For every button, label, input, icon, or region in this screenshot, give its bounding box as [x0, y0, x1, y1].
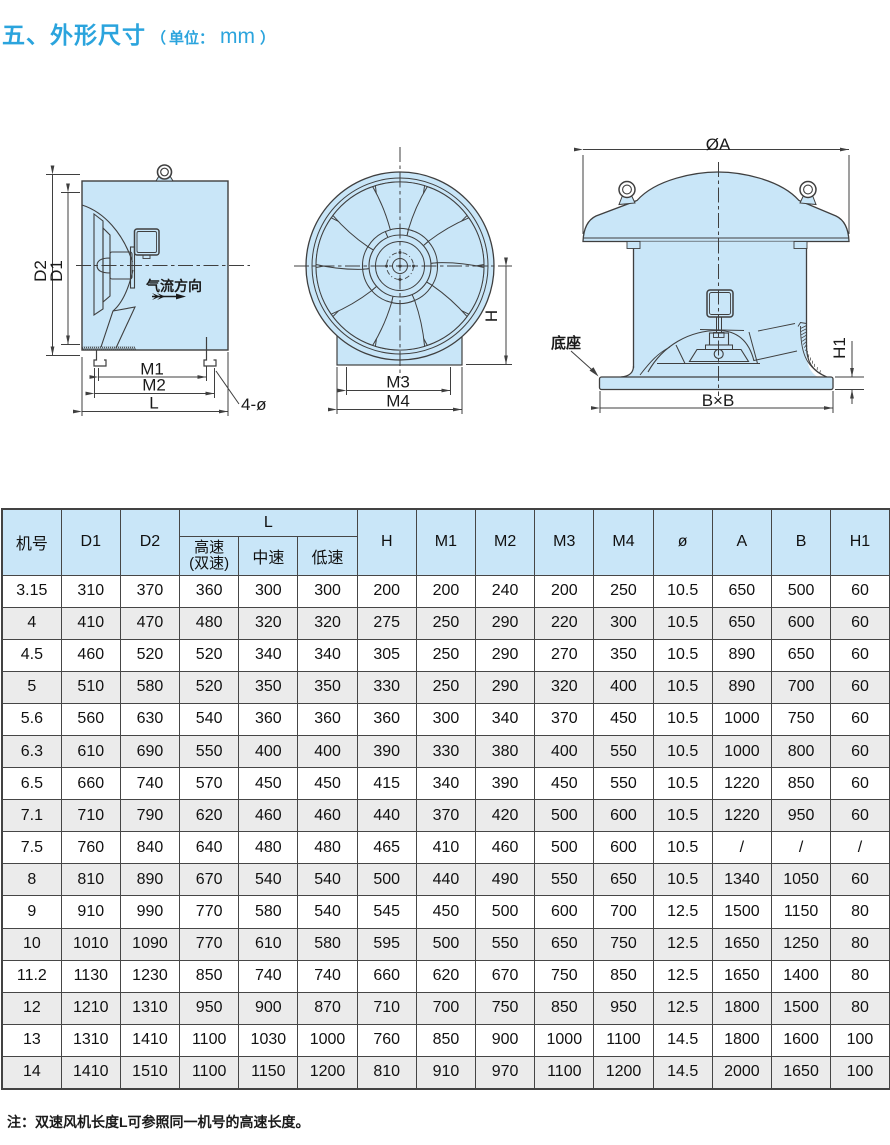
svg-text:M2: M2: [142, 376, 166, 395]
svg-text:B×B: B×B: [702, 391, 735, 410]
svg-text:D1: D1: [47, 260, 66, 282]
svg-text:M4: M4: [386, 392, 410, 411]
svg-text:气流方向: 气流方向: [145, 278, 202, 294]
svg-text:H: H: [482, 310, 501, 322]
svg-text:底座: 底座: [551, 334, 581, 352]
svg-text:M3: M3: [386, 373, 410, 392]
svg-text:4-ø: 4-ø: [241, 395, 267, 414]
svg-text:ØA: ØA: [706, 135, 731, 154]
svg-text:H1: H1: [830, 337, 849, 359]
svg-text:L: L: [149, 394, 158, 413]
